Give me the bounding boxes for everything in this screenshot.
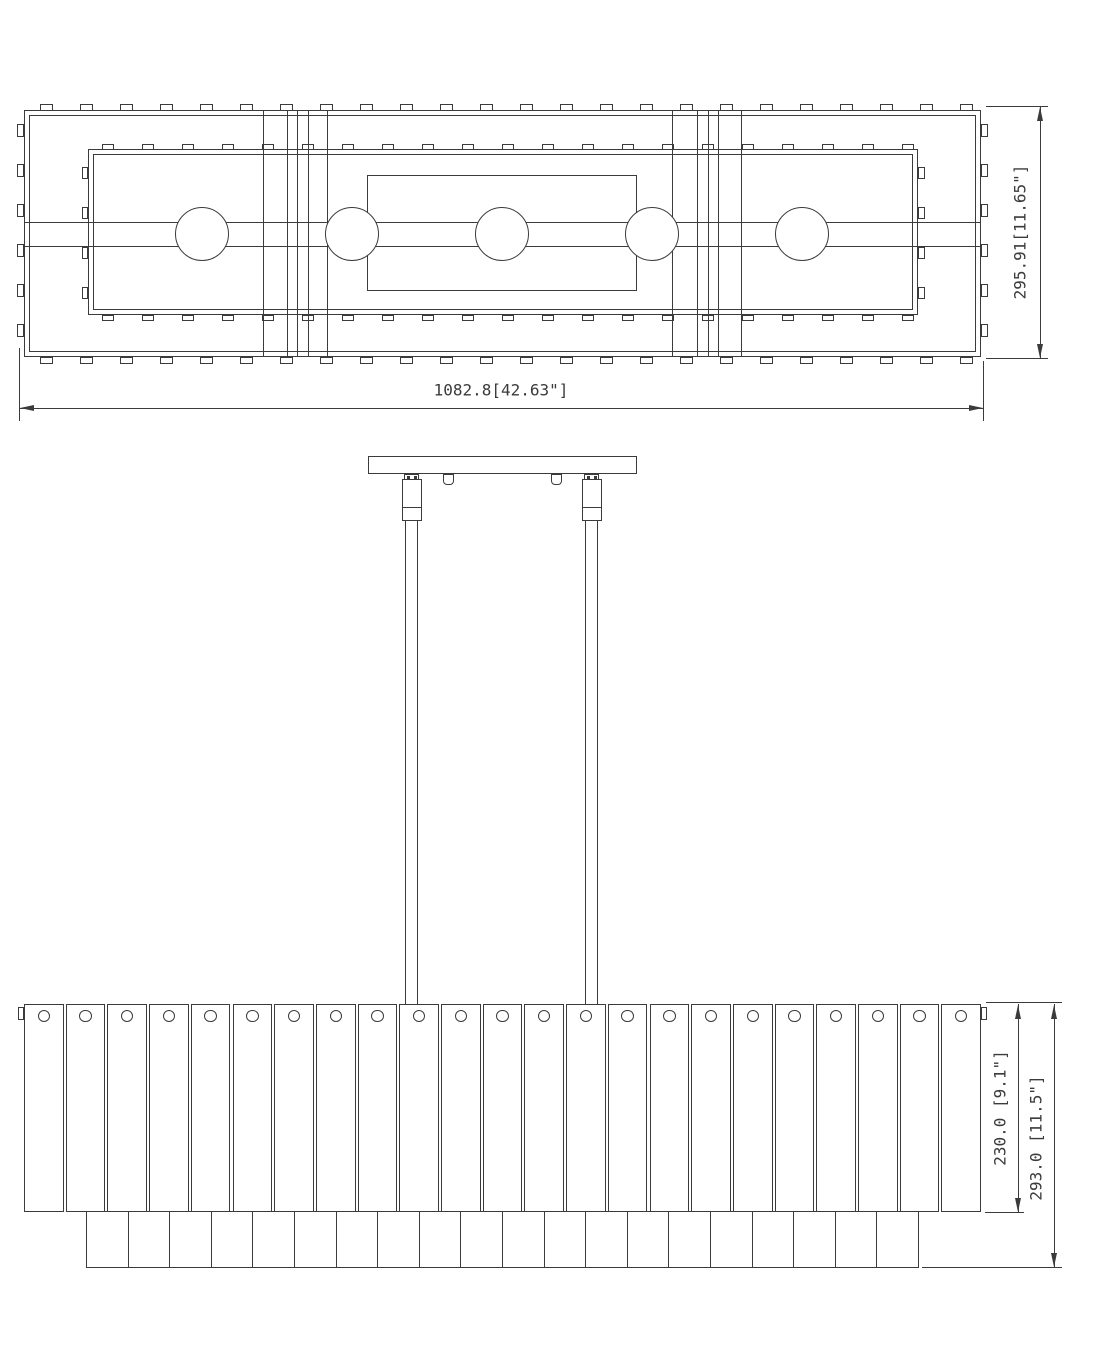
outer-frame-tab-top bbox=[760, 104, 773, 111]
slat-hole bbox=[788, 1010, 800, 1022]
shade-height-dim-label: 230.0 [9.1"] bbox=[991, 1050, 1010, 1166]
shade-slat bbox=[733, 1004, 773, 1212]
shade-slat bbox=[941, 1004, 981, 1212]
outer-frame-tab-bottom bbox=[280, 357, 293, 364]
shade-slat bbox=[149, 1004, 189, 1212]
outer-frame-tab-right bbox=[981, 124, 988, 137]
plan-support-line bbox=[297, 111, 298, 356]
outer-frame-tab-bottom bbox=[480, 357, 493, 364]
outer-frame-tab-top bbox=[360, 104, 373, 111]
inner-frame-tab-right bbox=[918, 247, 925, 259]
inner-frame-tab-bottom bbox=[182, 315, 194, 322]
height-dim-arrow-up-icon bbox=[1037, 107, 1043, 121]
width-dim-extension-right bbox=[983, 361, 984, 421]
inner-frame-tab-top bbox=[342, 144, 354, 151]
inner-frame-tab-bottom bbox=[862, 315, 874, 322]
shade-slat bbox=[316, 1004, 356, 1212]
outer-frame-tab-bottom bbox=[160, 357, 173, 364]
width-dim-label: 1082.8[42.63"] bbox=[434, 381, 569, 400]
outer-frame-tab-bottom bbox=[400, 357, 413, 364]
inner-frame-tab-bottom bbox=[782, 315, 794, 322]
outer-frame-tab-right bbox=[981, 284, 988, 297]
outer-frame-tab-bottom bbox=[560, 357, 573, 364]
outer-frame-tab-bottom bbox=[40, 357, 53, 364]
outer-frame-tab-top bbox=[560, 104, 573, 111]
inner-frame-tab-bottom bbox=[702, 315, 714, 322]
rod-knuckle-right bbox=[582, 479, 602, 521]
shade-height-arrow-up-icon bbox=[1015, 1005, 1021, 1019]
inner-frame-tab-bottom bbox=[222, 315, 234, 322]
bottom-cell bbox=[502, 1211, 545, 1268]
plan-support-line bbox=[287, 111, 288, 356]
overall-height-arrow-down-icon bbox=[1051, 1253, 1057, 1267]
outer-frame-tab-top bbox=[800, 104, 813, 111]
overall-height-dim-label: 293.0 [11.5"] bbox=[1027, 1075, 1046, 1200]
outer-frame-tab-top bbox=[280, 104, 293, 111]
hanging-rod-right bbox=[585, 520, 598, 1005]
outer-frame-tab-bottom bbox=[680, 357, 693, 364]
shade-height-extension-bottom bbox=[985, 1212, 1024, 1213]
inner-frame-tab-bottom bbox=[742, 315, 754, 322]
outer-frame-tab-top bbox=[160, 104, 173, 111]
outer-frame-tab-bottom bbox=[720, 357, 733, 364]
outer-frame-tab-bottom bbox=[120, 357, 133, 364]
inner-frame-tab-top bbox=[662, 144, 674, 151]
outer-frame-tab-left bbox=[17, 284, 24, 297]
outer-frame-tab-right bbox=[981, 204, 988, 217]
shade-slat bbox=[358, 1004, 398, 1212]
bottom-cell bbox=[876, 1211, 919, 1268]
elevation-top-extension-line bbox=[986, 1002, 1062, 1003]
inner-frame-tab-top bbox=[822, 144, 834, 151]
outer-frame-tab-bottom bbox=[640, 357, 653, 364]
bottom-cell bbox=[752, 1211, 795, 1268]
shade-slat bbox=[191, 1004, 231, 1212]
height-dim-extension-bottom bbox=[986, 358, 1048, 359]
inner-frame-tab-left bbox=[82, 247, 89, 259]
inner-frame-tab-top bbox=[302, 144, 314, 151]
shade-end-tab-right bbox=[981, 1007, 987, 1020]
inner-frame-tab-left bbox=[82, 287, 89, 299]
outer-frame-tab-left bbox=[17, 204, 24, 217]
inner-frame-tab-bottom bbox=[902, 315, 914, 322]
width-dim-line bbox=[19, 408, 983, 409]
overall-height-arrow-up-icon bbox=[1051, 1005, 1057, 1019]
outer-frame-tab-top bbox=[680, 104, 693, 111]
shade-slat bbox=[566, 1004, 606, 1212]
shade-end-tab-left bbox=[18, 1007, 24, 1020]
width-dim-arrow-right-icon bbox=[969, 405, 983, 411]
inner-frame-tab-bottom bbox=[622, 315, 634, 322]
inner-frame-tab-top bbox=[222, 144, 234, 151]
outer-frame-tab-top bbox=[880, 104, 893, 111]
outer-frame-tab-bottom bbox=[800, 357, 813, 364]
shade-slat bbox=[608, 1004, 648, 1212]
shade-slat bbox=[107, 1004, 147, 1212]
bottom-cell bbox=[710, 1211, 753, 1268]
inner-frame-tab-right bbox=[918, 207, 925, 219]
outer-frame-tab-top bbox=[120, 104, 133, 111]
inner-frame-tab-bottom bbox=[462, 315, 474, 322]
bottom-cell bbox=[793, 1211, 836, 1268]
shade-slat bbox=[441, 1004, 481, 1212]
inner-frame-tab-top bbox=[262, 144, 274, 151]
outer-frame-tab-top bbox=[480, 104, 493, 111]
bottom-cell bbox=[377, 1211, 420, 1268]
bottom-cell bbox=[627, 1211, 670, 1268]
outer-frame-tab-bottom bbox=[520, 357, 533, 364]
lamp-circle bbox=[475, 207, 529, 261]
outer-frame-tab-top bbox=[200, 104, 213, 111]
outer-frame-tab-bottom bbox=[80, 357, 93, 364]
outer-frame-tab-bottom bbox=[760, 357, 773, 364]
inner-frame-tab-top bbox=[102, 144, 114, 151]
inner-frame-tab-bottom bbox=[382, 315, 394, 322]
outer-frame-tab-left bbox=[17, 324, 24, 337]
inner-frame-tab-bottom bbox=[822, 315, 834, 322]
inner-frame-tab-left bbox=[82, 167, 89, 179]
outer-frame-tab-top bbox=[40, 104, 53, 111]
plan-support-line bbox=[697, 111, 698, 356]
ceiling-canopy bbox=[368, 456, 637, 474]
bottom-cell bbox=[585, 1211, 628, 1268]
outer-frame-tab-bottom bbox=[320, 357, 333, 364]
slat-hole bbox=[496, 1010, 508, 1022]
shade-slat bbox=[66, 1004, 106, 1212]
inner-frame-tab-top bbox=[702, 144, 714, 151]
inner-frame-tab-top bbox=[742, 144, 754, 151]
outer-frame-tab-right bbox=[981, 164, 988, 177]
inner-frame-tab-top bbox=[182, 144, 194, 151]
outer-frame-tab-right bbox=[981, 324, 988, 337]
inner-frame-tab-bottom bbox=[102, 315, 114, 322]
inner-frame-tab-top bbox=[502, 144, 514, 151]
inner-frame-tab-left bbox=[82, 207, 89, 219]
inner-frame-tab-top bbox=[422, 144, 434, 151]
inner-frame-tab-top bbox=[542, 144, 554, 151]
outer-frame-tab-top bbox=[920, 104, 933, 111]
bottom-cell bbox=[668, 1211, 711, 1268]
bottom-cell bbox=[835, 1211, 878, 1268]
outer-frame-tab-top bbox=[640, 104, 653, 111]
bottom-cell bbox=[128, 1211, 171, 1268]
shade-slat bbox=[524, 1004, 564, 1212]
height-dim-line bbox=[1040, 106, 1041, 358]
outer-frame-tab-top bbox=[440, 104, 453, 111]
canopy-hook-left bbox=[443, 474, 454, 485]
inner-frame-tab-bottom bbox=[422, 315, 434, 322]
slat-hole bbox=[371, 1010, 383, 1022]
shade-slat bbox=[775, 1004, 815, 1212]
outer-frame-tab-bottom bbox=[360, 357, 373, 364]
inner-frame-tab-bottom bbox=[502, 315, 514, 322]
shade-slat bbox=[858, 1004, 898, 1212]
outer-frame-tab-top bbox=[80, 104, 93, 111]
height-dim-label: 295.91[11.65"] bbox=[1011, 165, 1030, 300]
overall-height-dim-line bbox=[1054, 1004, 1055, 1267]
outer-frame-tab-bottom bbox=[240, 357, 253, 364]
shade-slat bbox=[399, 1004, 439, 1212]
lamp-circle bbox=[625, 207, 679, 261]
inner-frame-tab-top bbox=[782, 144, 794, 151]
outer-frame-tab-left bbox=[17, 164, 24, 177]
bottom-cell bbox=[544, 1211, 587, 1268]
bottom-cell bbox=[211, 1211, 254, 1268]
outer-frame-tab-top bbox=[520, 104, 533, 111]
outer-frame-tab-top bbox=[400, 104, 413, 111]
outer-frame-tab-left bbox=[17, 124, 24, 137]
hanging-rod-left bbox=[405, 520, 418, 1005]
outer-frame-tab-top bbox=[720, 104, 733, 111]
bottom-cell bbox=[252, 1211, 295, 1268]
outer-frame-tab-bottom bbox=[200, 357, 213, 364]
inner-frame-tab-bottom bbox=[142, 315, 154, 322]
slat-hole bbox=[246, 1010, 258, 1022]
outer-frame-tab-bottom bbox=[600, 357, 613, 364]
inner-frame-tab-top bbox=[862, 144, 874, 151]
shade-height-arrow-down-icon bbox=[1015, 1198, 1021, 1212]
shade-slat bbox=[483, 1004, 523, 1212]
slat-hole bbox=[663, 1010, 675, 1022]
inner-frame-tab-right bbox=[918, 287, 925, 299]
shade-slat bbox=[816, 1004, 856, 1212]
outer-frame-tab-bottom bbox=[880, 357, 893, 364]
outer-frame-tab-right bbox=[981, 244, 988, 257]
outer-frame-tab-top bbox=[960, 104, 973, 111]
lamp-circle bbox=[325, 207, 379, 261]
inner-frame-tab-bottom bbox=[302, 315, 314, 322]
shade-slat bbox=[24, 1004, 64, 1212]
outer-frame-tab-top bbox=[320, 104, 333, 111]
inner-frame-tab-bottom bbox=[662, 315, 674, 322]
outer-frame-tab-bottom bbox=[960, 357, 973, 364]
shade-slat bbox=[650, 1004, 690, 1212]
inner-frame-tab-top bbox=[462, 144, 474, 151]
bottom-cell bbox=[419, 1211, 462, 1268]
height-dim-arrow-down-icon bbox=[1037, 344, 1043, 358]
inner-frame-tab-top bbox=[382, 144, 394, 151]
canopy-hook-right bbox=[551, 474, 562, 485]
inner-frame-tab-top bbox=[902, 144, 914, 151]
shade-slat bbox=[691, 1004, 731, 1212]
drawing-canvas: 1082.8[42.63"] 295.91[11.65"] 230.0 [9.1… bbox=[0, 0, 1096, 1370]
inner-frame-tab-top bbox=[142, 144, 154, 151]
inner-frame-tab-bottom bbox=[582, 315, 594, 322]
inner-frame-tab-bottom bbox=[542, 315, 554, 322]
outer-frame-tab-top bbox=[240, 104, 253, 111]
shade-height-dim-line bbox=[1018, 1004, 1019, 1212]
shade-slat bbox=[274, 1004, 314, 1212]
slat-hole bbox=[79, 1010, 91, 1022]
bottom-cell bbox=[294, 1211, 337, 1268]
inner-frame-tab-bottom bbox=[342, 315, 354, 322]
bottom-cell bbox=[336, 1211, 379, 1268]
bottom-cell bbox=[86, 1211, 129, 1268]
outer-frame-tab-bottom bbox=[920, 357, 933, 364]
overall-height-extension-bottom bbox=[922, 1267, 1062, 1268]
slat-hole bbox=[913, 1010, 925, 1022]
shade-slat bbox=[233, 1004, 273, 1212]
bottom-cell bbox=[460, 1211, 503, 1268]
lamp-circle bbox=[775, 207, 829, 261]
outer-frame-tab-left bbox=[17, 244, 24, 257]
inner-frame-tab-bottom bbox=[262, 315, 274, 322]
inner-frame-tab-top bbox=[582, 144, 594, 151]
inner-frame-tab-right bbox=[918, 167, 925, 179]
bottom-cell bbox=[169, 1211, 212, 1268]
lamp-circle bbox=[175, 207, 229, 261]
outer-frame-tab-bottom bbox=[840, 357, 853, 364]
shade-slat bbox=[900, 1004, 940, 1212]
outer-frame-tab-top bbox=[600, 104, 613, 111]
inner-frame-tab-top bbox=[622, 144, 634, 151]
rod-knuckle-left bbox=[402, 479, 422, 521]
plan-support-line bbox=[718, 111, 719, 356]
outer-frame-tab-top bbox=[840, 104, 853, 111]
outer-frame-tab-bottom bbox=[440, 357, 453, 364]
width-dim-arrow-left-icon bbox=[20, 405, 34, 411]
